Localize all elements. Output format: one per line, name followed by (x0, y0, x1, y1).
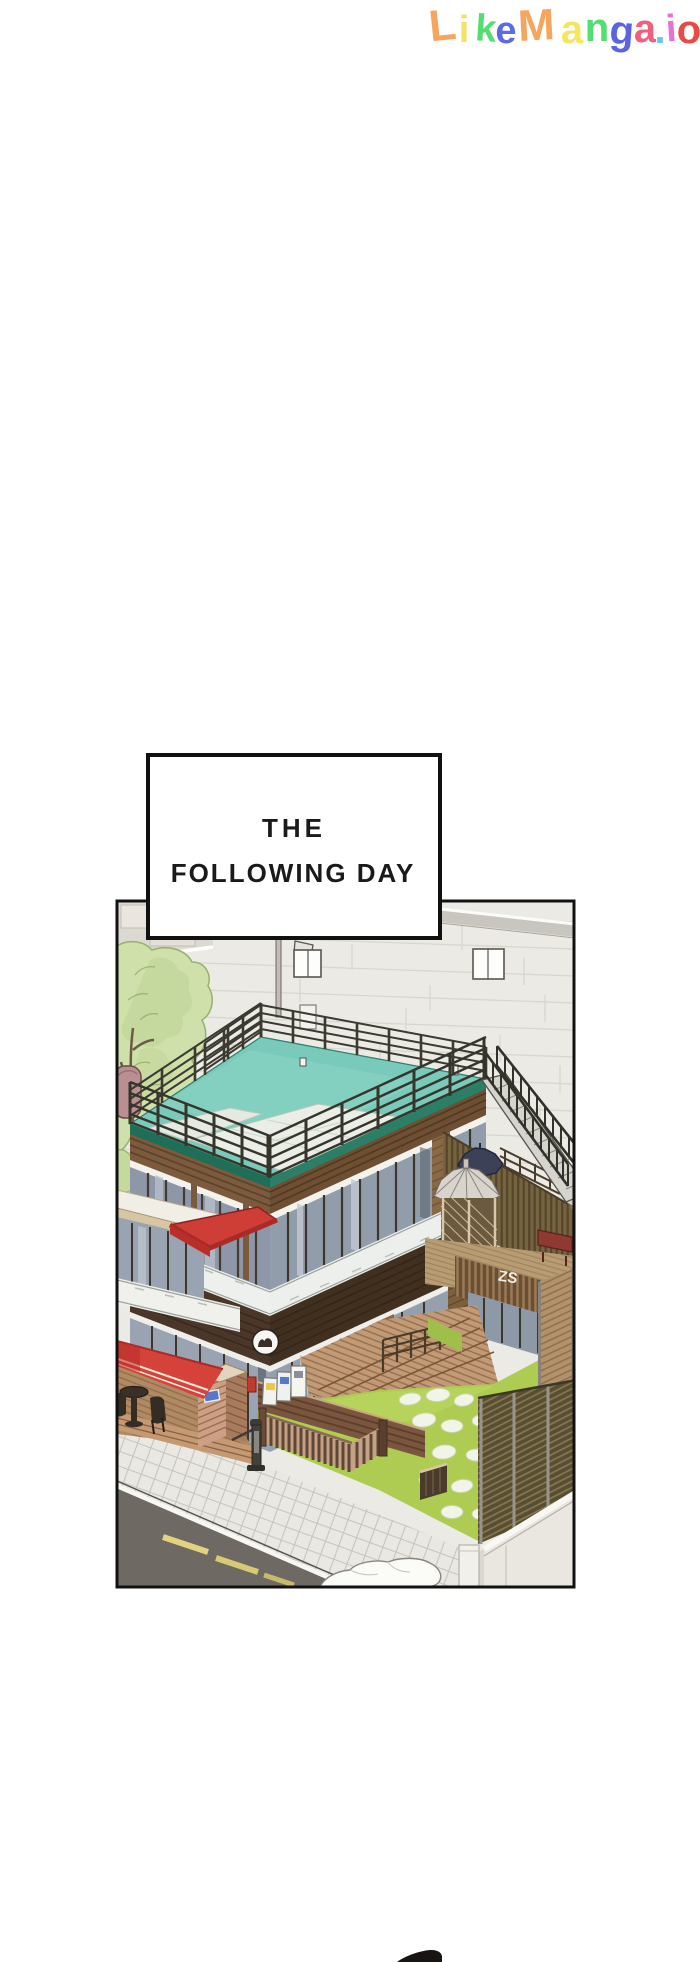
svg-text:a: a (561, 8, 584, 52)
svg-text:FOLLOWING DAY: FOLLOWING DAY (171, 858, 416, 888)
svg-text:L: L (427, 0, 459, 51)
svg-text:o: o (677, 8, 700, 52)
svg-text:e: e (495, 10, 516, 52)
svg-text:ZS: ZS (497, 1268, 519, 1288)
svg-text:g: g (608, 8, 635, 54)
svg-text:n: n (585, 6, 609, 50)
svg-text:THE: THE (262, 813, 326, 843)
svg-text:a: a (634, 7, 657, 51)
svg-text:M: M (517, 0, 556, 51)
svg-text:i: i (459, 9, 470, 51)
